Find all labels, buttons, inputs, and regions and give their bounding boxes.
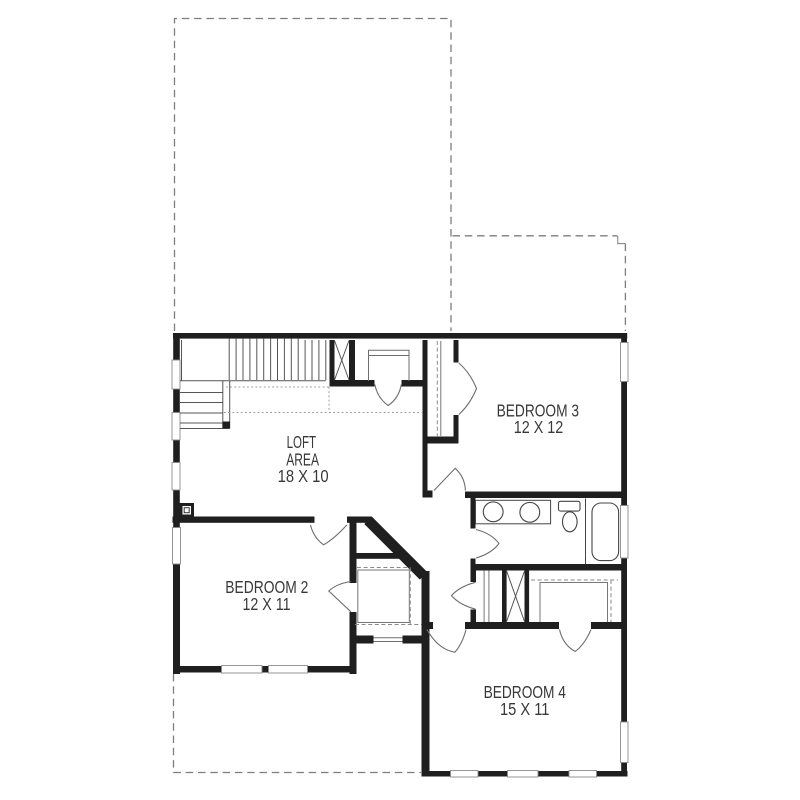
svg-text:15 X 11: 15 X 11 <box>500 699 549 719</box>
svg-text:12 X 11: 12 X 11 <box>243 594 291 614</box>
svg-text:18 X 10: 18 X 10 <box>278 466 329 486</box>
svg-text:12 X 12: 12 X 12 <box>514 417 563 437</box>
